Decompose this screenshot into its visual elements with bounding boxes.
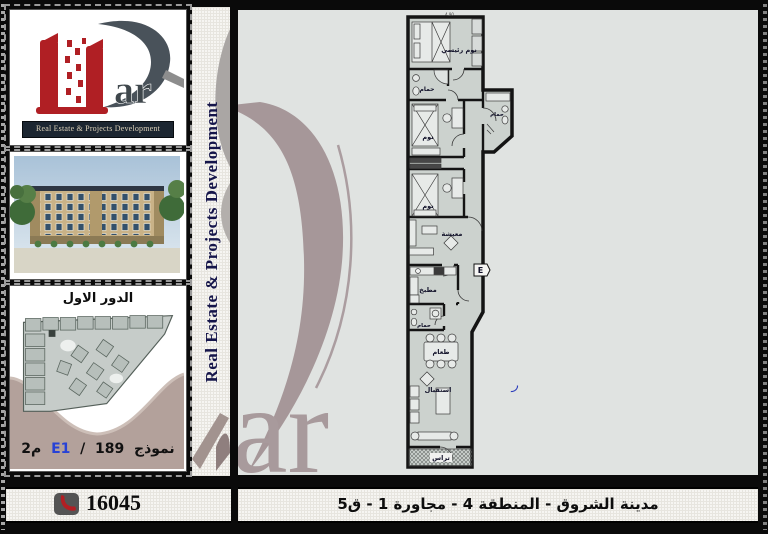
dar-logo: ar	[10, 10, 184, 120]
watermark-d-swirl-icon	[238, 102, 343, 472]
area-unit: م2	[21, 441, 41, 457]
label-living: معيشة	[442, 230, 463, 238]
watermark-brush-line-icon	[316, 145, 351, 388]
site-plan-thumbnail	[10, 308, 184, 416]
label-master-bedroom: نوم رئيسي	[441, 46, 477, 54]
building-photo	[10, 152, 184, 277]
floor-thumbnail-panel: الدور الاول	[9, 285, 187, 472]
building-photo-panel	[9, 151, 187, 280]
unit-letter: E	[478, 266, 483, 275]
model-label: نموذج	[134, 441, 175, 457]
label-bedroom-2: نوم	[422, 202, 433, 210]
model-caption: نموذج E1 / 189 م2	[10, 441, 186, 457]
apartment-outline	[408, 17, 512, 467]
footer-phone-bar: 16045	[6, 487, 231, 523]
watermark-ar-text: ar	[238, 362, 329, 475]
logo-banner: Real Estate & Projects Development	[22, 121, 174, 138]
footer-address-bar: مدينة الشروق - المنطقة 4 - مجاورة 1 - ق5	[238, 487, 758, 523]
label-dining: طعام	[433, 348, 450, 356]
vertical-brand-strip: Real Estate & Projects Development	[192, 7, 230, 476]
company-logo-panel: ar Real Estate & Projects Development	[9, 9, 187, 146]
area-value: 189	[95, 441, 124, 457]
vertical-brand-text: Real Estate & Projects Development	[192, 12, 230, 472]
label-bathroom-2: حمام	[490, 112, 504, 118]
floor-plan: E نوم رئيسي حمام نوم حمام نوم معيشة مطبخ…	[388, 12, 548, 473]
label-bathroom-3: حمام	[417, 323, 431, 329]
model-code: E1	[51, 441, 70, 457]
label-terrace: تراس	[432, 454, 450, 462]
separator: /	[80, 441, 85, 457]
logo-building-icon	[36, 33, 108, 114]
label-kitchen: مطبخ	[419, 286, 437, 294]
label-bedroom-1: نوم	[422, 133, 433, 141]
label-bathroom-1: حمام	[420, 86, 435, 93]
plan-canvas: ar	[238, 10, 758, 475]
address-text: مدينة الشروق - المنطقة 4 - مجاورة 1 - ق5	[238, 489, 758, 521]
phone-icon	[54, 493, 79, 515]
logo-brush-handle-icon	[162, 70, 184, 88]
brochure-page: ar Real Estate & Projects Development	[0, 0, 768, 534]
dimension-label: 4.90	[445, 12, 454, 17]
stray-mark: ر	[512, 378, 518, 393]
logo-ar-text: ar	[114, 67, 152, 112]
label-reception: استقبال	[425, 386, 452, 394]
phone-number: 16045	[86, 490, 141, 516]
